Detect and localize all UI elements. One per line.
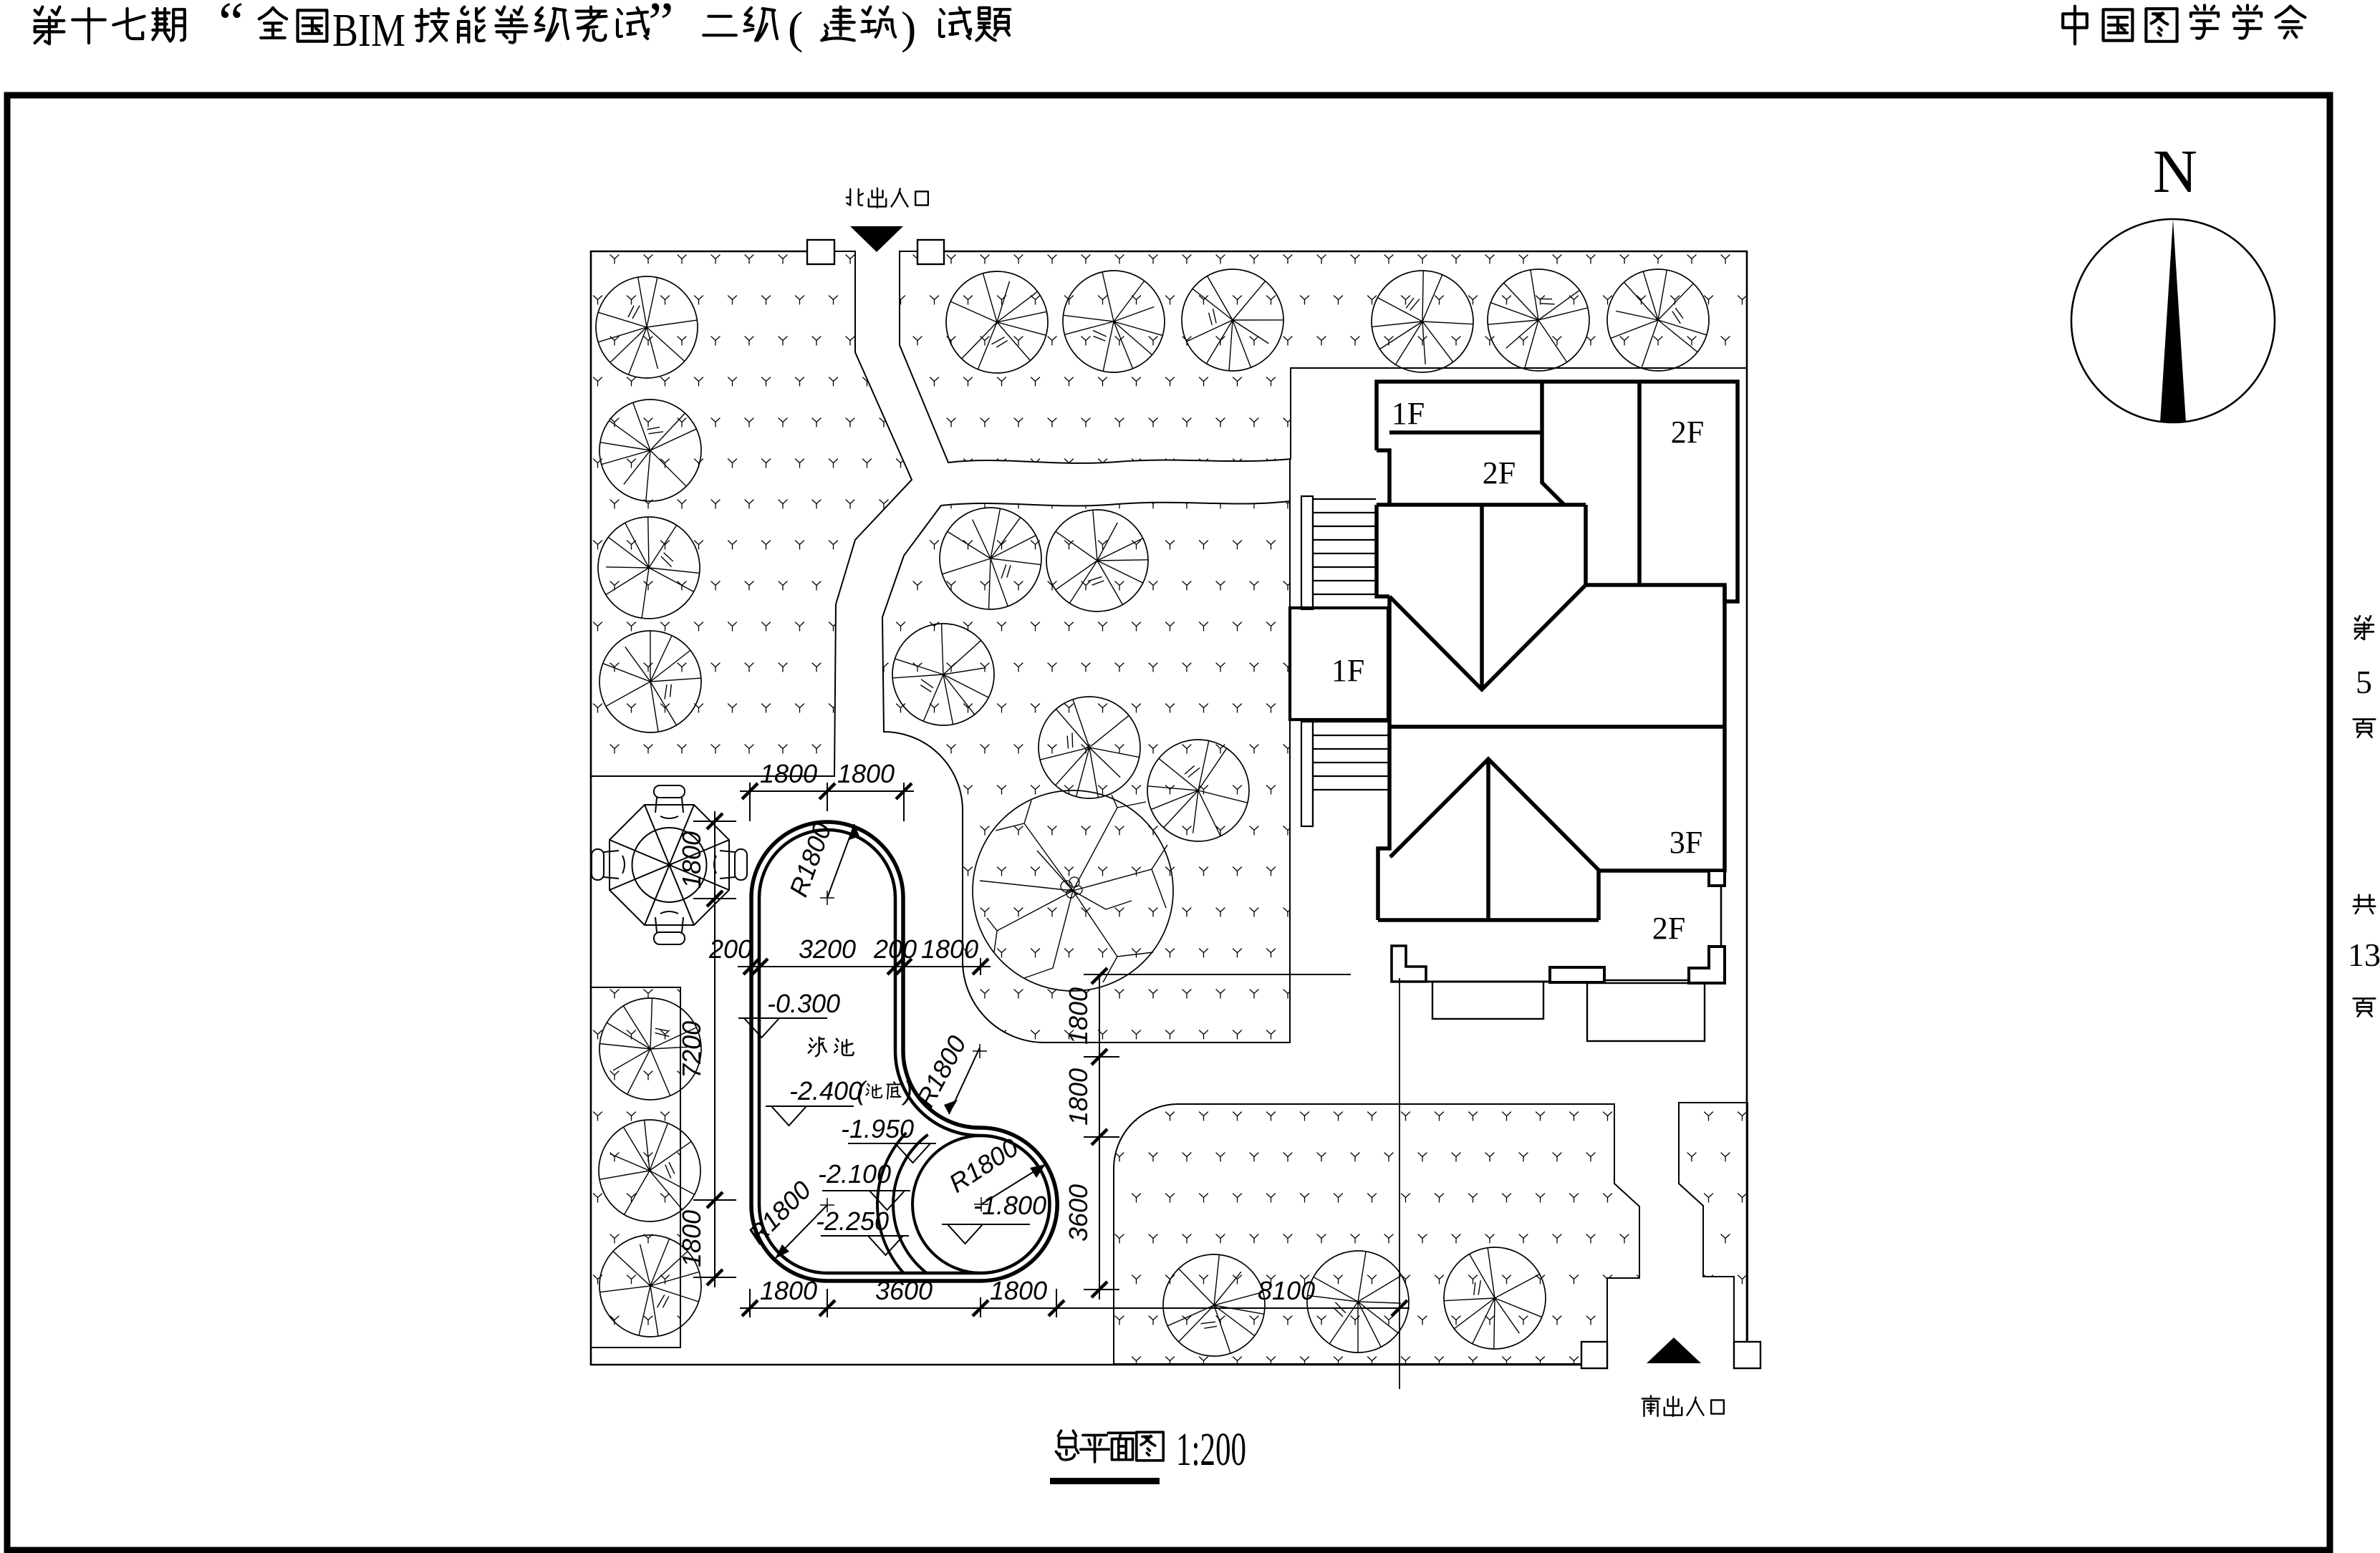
svg-text:3200: 3200: [799, 934, 856, 964]
svg-text:2F: 2F: [1483, 455, 1516, 490]
svg-text:-2.250: -2.250: [816, 1206, 889, 1236]
svg-text:2F: 2F: [1652, 911, 1685, 946]
svg-text:”: ”: [648, 0, 674, 54]
svg-text:1800: 1800: [760, 1276, 817, 1305]
svg-text:3600: 3600: [1064, 1184, 1093, 1242]
svg-text:“: “: [218, 0, 244, 54]
svg-text:1800: 1800: [677, 831, 706, 889]
svg-text:1:200: 1:200: [1176, 1423, 1246, 1476]
svg-text:-1.800: -1.800: [973, 1191, 1046, 1220]
svg-text:-1.950: -1.950: [841, 1114, 914, 1143]
svg-text:): ): [901, 2, 916, 53]
svg-text:(: (: [788, 2, 803, 53]
svg-text:13: 13: [2348, 937, 2380, 973]
svg-text:2F: 2F: [1671, 415, 1704, 450]
svg-text:3F: 3F: [1670, 825, 1702, 860]
svg-text:-0.300: -0.300: [767, 989, 840, 1018]
svg-text:1800: 1800: [677, 1210, 706, 1267]
svg-text:-2.400: -2.400: [789, 1076, 862, 1106]
svg-text:BIM: BIM: [332, 4, 405, 57]
svg-text:200: 200: [873, 934, 917, 964]
svg-text:3600: 3600: [875, 1276, 933, 1305]
svg-text:1F: 1F: [1392, 396, 1425, 431]
svg-text:1800: 1800: [837, 759, 895, 788]
svg-text:1800: 1800: [921, 934, 978, 964]
svg-text:N: N: [2153, 137, 2197, 205]
svg-text:1800: 1800: [1064, 1068, 1093, 1126]
svg-text:1800: 1800: [990, 1276, 1047, 1305]
svg-text:-2.100: -2.100: [818, 1159, 891, 1189]
svg-text:5: 5: [2356, 664, 2372, 700]
svg-text:1F: 1F: [1331, 653, 1364, 688]
svg-text:8100: 8100: [1258, 1276, 1315, 1305]
svg-text:1800: 1800: [1064, 987, 1093, 1045]
svg-text:7200: 7200: [677, 1021, 706, 1078]
svg-text:1800: 1800: [760, 759, 817, 788]
